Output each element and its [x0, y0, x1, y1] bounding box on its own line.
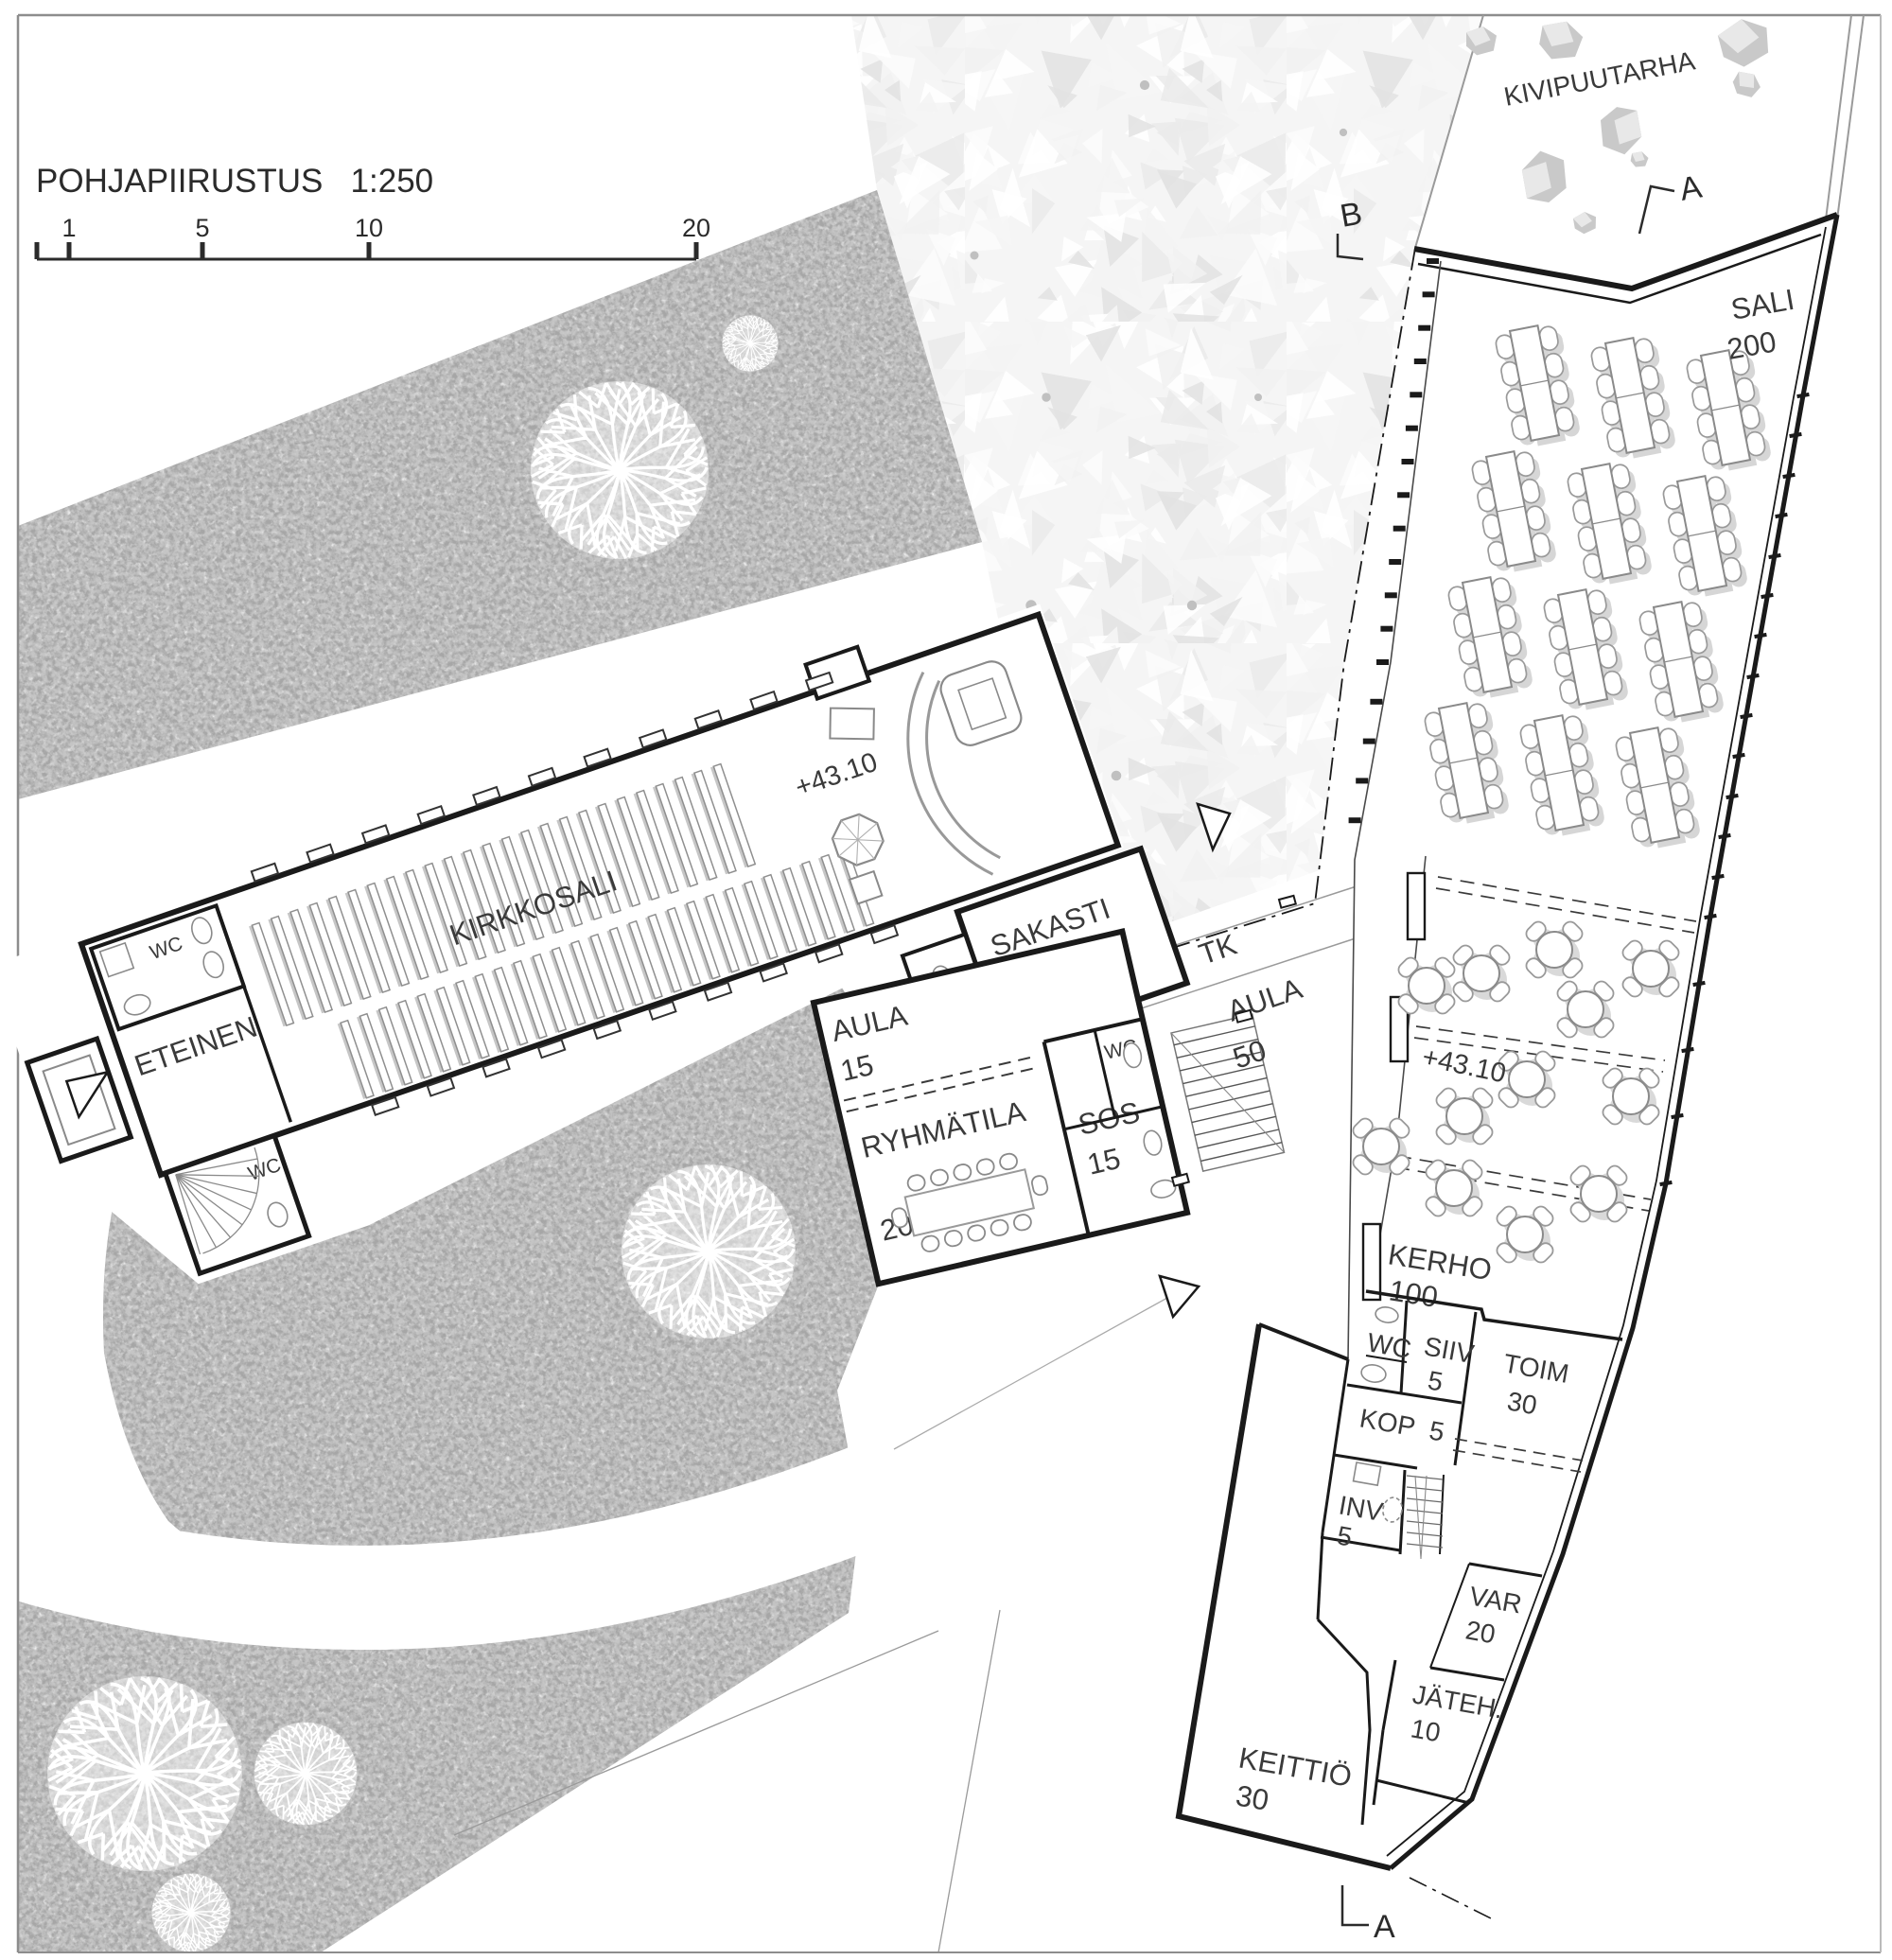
- svg-text:20: 20: [682, 214, 710, 242]
- svg-text:POHJAPIIRUSTUS 1:250: POHJAPIIRUSTUS 1:250: [36, 163, 433, 200]
- svg-text:A: A: [1374, 1909, 1395, 1945]
- svg-text:1: 1: [61, 214, 76, 242]
- svg-text:20: 20: [1463, 1615, 1498, 1649]
- svg-text:30: 30: [1505, 1386, 1539, 1420]
- svg-text:10: 10: [355, 214, 383, 242]
- svg-text:10: 10: [1409, 1713, 1443, 1747]
- svg-text:30: 30: [1234, 1778, 1271, 1816]
- svg-text:5: 5: [195, 214, 209, 242]
